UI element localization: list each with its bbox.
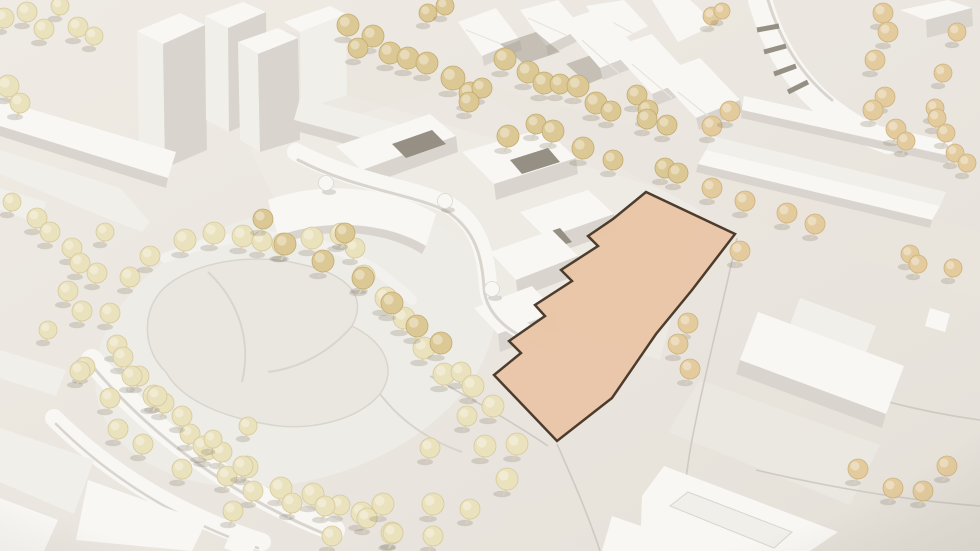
architectural-model-photo [0,0,980,551]
site-model-scene [0,0,980,551]
photo-vignette [0,0,980,551]
